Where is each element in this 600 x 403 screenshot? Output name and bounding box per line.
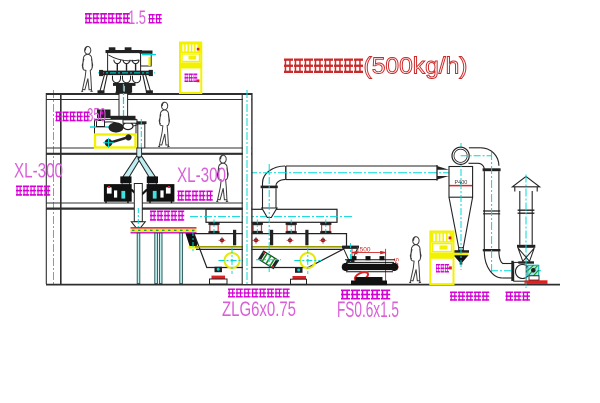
svg-text:XL-300: XL-300	[177, 163, 226, 187]
svg-text:ZLG6x0.75: ZLG6x0.75	[222, 297, 296, 321]
svg-text:1500: 1500	[356, 247, 371, 254]
svg-text:XL-300: XL-300	[14, 159, 63, 183]
svg-text:FS0.6x1.5: FS0.6x1.5	[337, 297, 399, 322]
svg-text:1.5: 1.5	[128, 8, 146, 29]
svg-text:(500kg/h): (500kg/h)	[364, 53, 468, 79]
svg-text:350: 350	[87, 106, 106, 127]
